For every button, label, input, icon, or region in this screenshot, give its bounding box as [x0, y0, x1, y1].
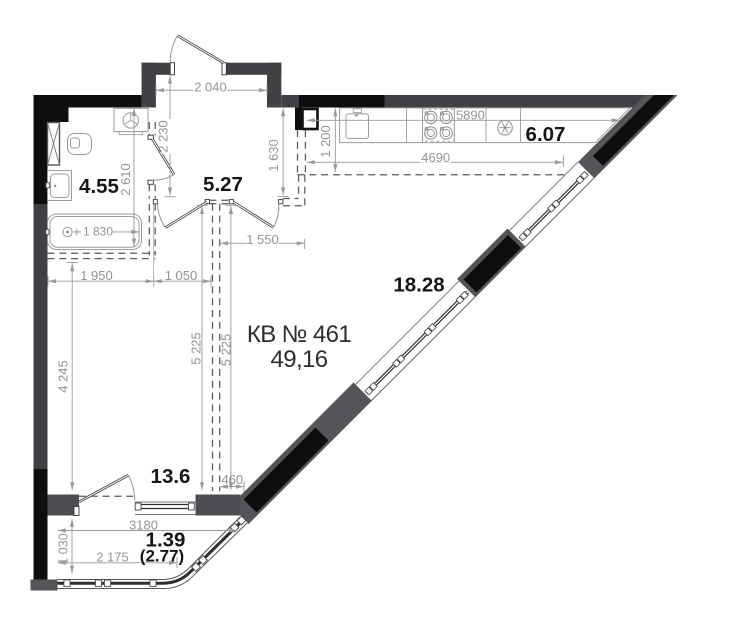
svg-text:5 225: 5 225: [218, 334, 233, 367]
svg-text:5890: 5890: [456, 108, 485, 123]
svg-text:1 030: 1 030: [57, 533, 71, 564]
svg-text:1 630: 1 630: [266, 139, 281, 172]
svg-text:1 550: 1 550: [246, 232, 279, 247]
svg-text:(2.77): (2.77): [140, 547, 184, 566]
svg-text:13.6: 13.6: [151, 465, 191, 488]
svg-text:2 610: 2 610: [118, 163, 133, 196]
svg-text:2 230: 2 230: [156, 120, 171, 153]
svg-text:2 175: 2 175: [96, 550, 129, 565]
svg-text:5.27: 5.27: [203, 173, 243, 196]
svg-text:5 225: 5 225: [189, 332, 204, 365]
svg-text:6.07: 6.07: [526, 123, 566, 146]
svg-text:2 040: 2 040: [194, 80, 227, 95]
svg-text:1 050: 1 050: [165, 268, 198, 283]
svg-text:1 200: 1 200: [318, 125, 333, 158]
svg-text:1 830: 1 830: [83, 225, 113, 239]
svg-text:4690: 4690: [421, 150, 450, 165]
svg-text:4 245: 4 245: [56, 360, 71, 393]
svg-text:460: 460: [221, 472, 243, 487]
svg-text:4.55: 4.55: [79, 175, 119, 198]
svg-text:1 950: 1 950: [80, 268, 113, 283]
svg-text:18.28: 18.28: [393, 274, 444, 297]
svg-text:КВ № 461: КВ № 461: [247, 321, 352, 348]
svg-text:49,16: 49,16: [270, 346, 327, 373]
svg-text:3180: 3180: [129, 517, 158, 532]
